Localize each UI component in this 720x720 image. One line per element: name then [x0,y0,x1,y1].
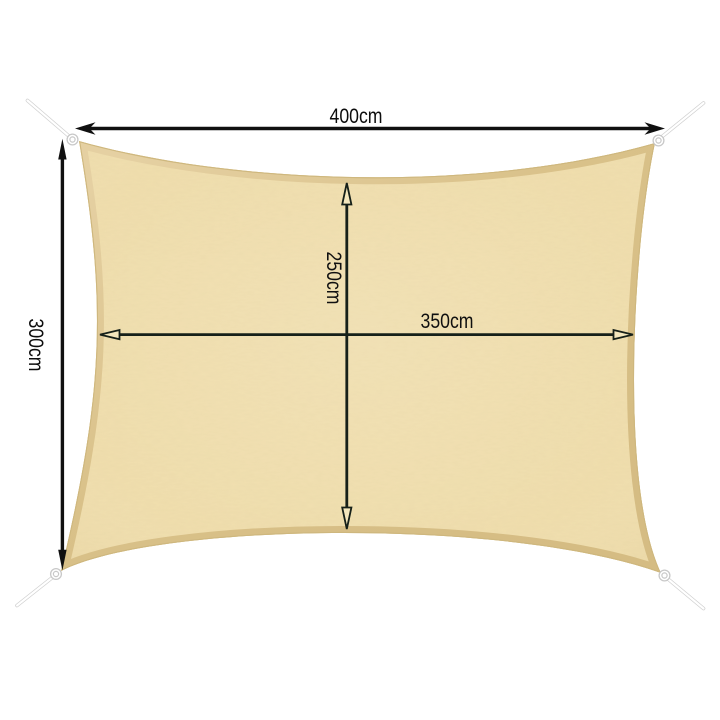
svg-text:250cm: 250cm [322,252,345,305]
svg-text:400cm: 400cm [330,105,383,128]
svg-text:350cm: 350cm [421,310,474,333]
svg-text:300cm: 300cm [24,319,47,372]
